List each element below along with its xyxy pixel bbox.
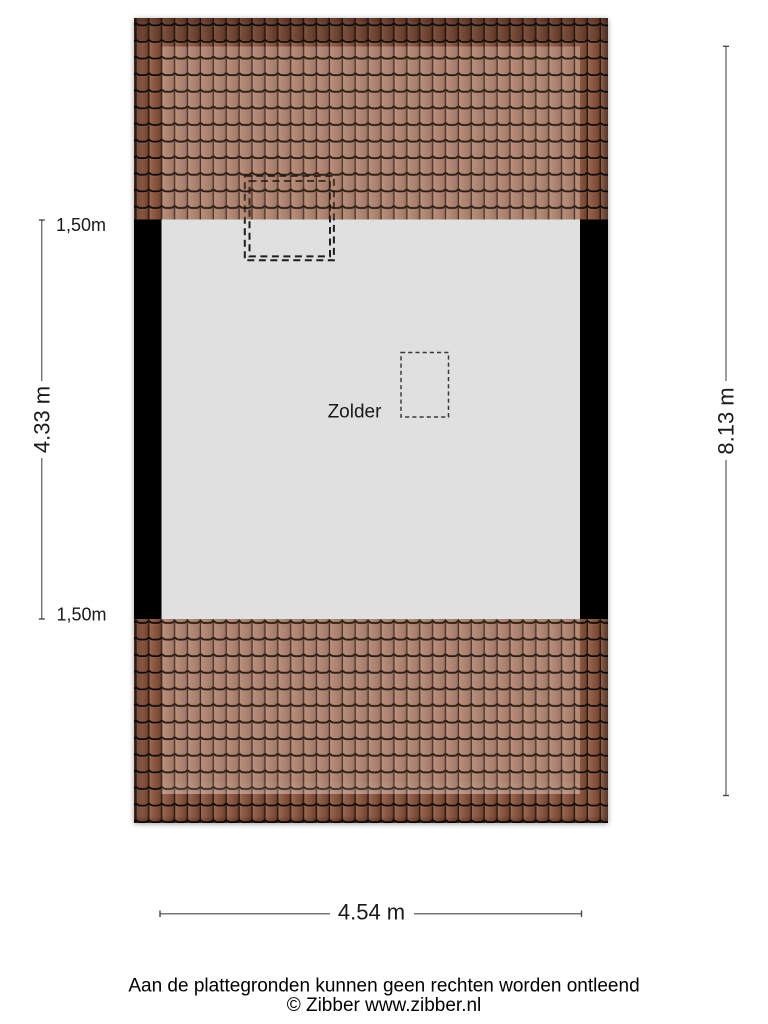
- svg-text:© Zibber www.zibber.nl: © Zibber www.zibber.nl: [287, 995, 482, 1016]
- svg-text:Zolder: Zolder: [328, 402, 383, 423]
- svg-text:4.33 m: 4.33 m: [29, 386, 54, 453]
- svg-text:1,50m: 1,50m: [56, 215, 106, 235]
- svg-text:8.13 m: 8.13 m: [713, 387, 738, 454]
- svg-text:4.54 m: 4.54 m: [338, 899, 405, 924]
- svg-text:Aan de plattegronden kunnen ge: Aan de plattegronden kunnen geen rechten…: [128, 975, 639, 996]
- svg-text:1,50m: 1,50m: [57, 605, 107, 625]
